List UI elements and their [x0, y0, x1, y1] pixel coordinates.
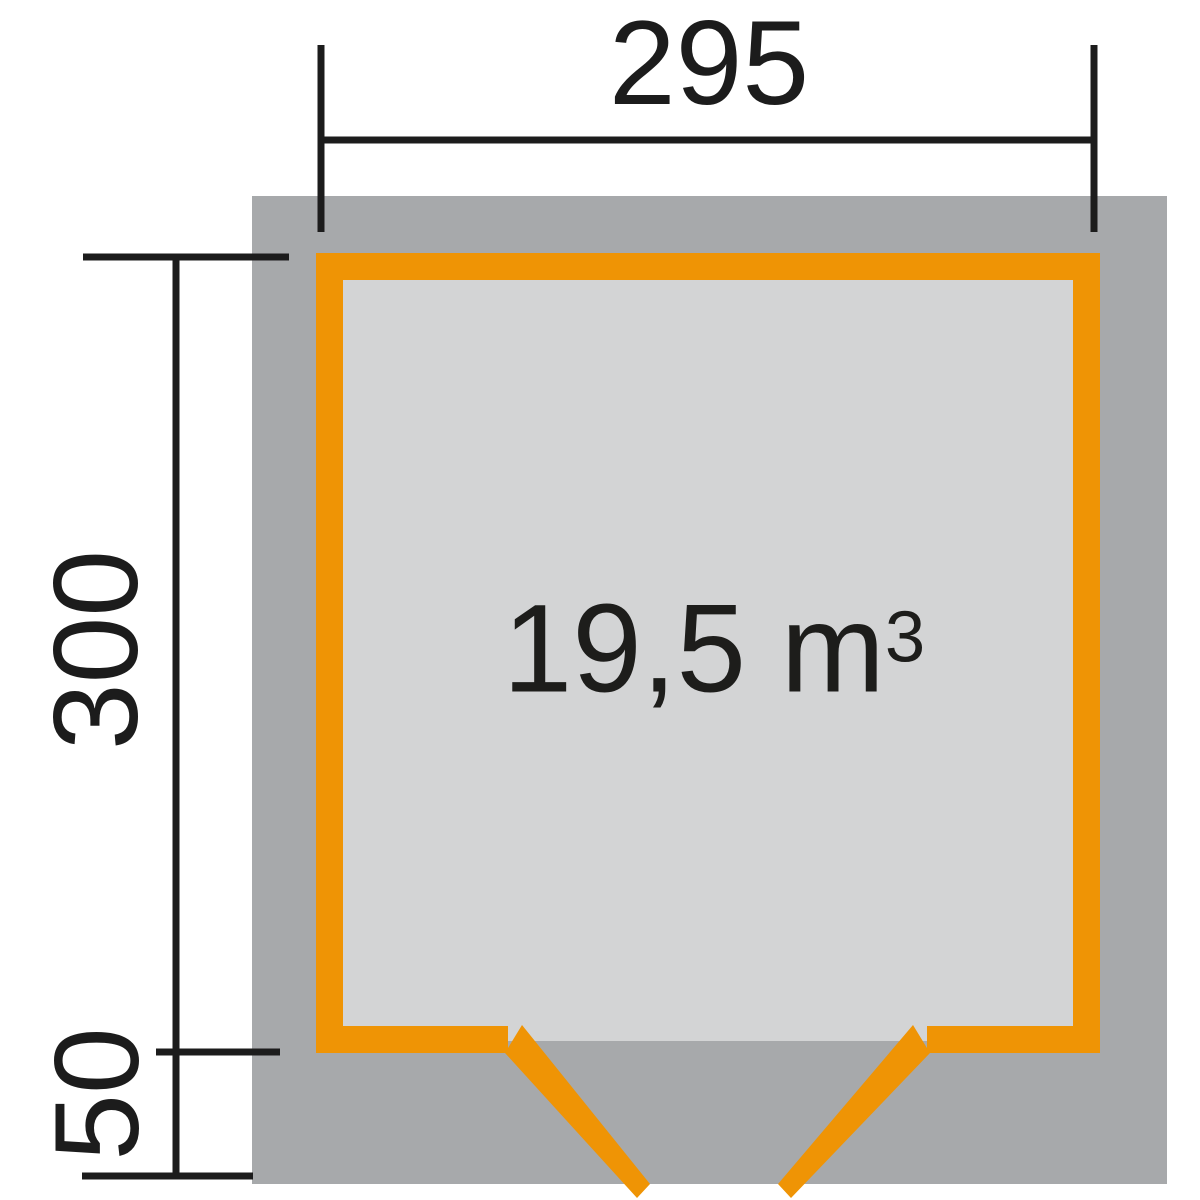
wall-bottom-right	[927, 1026, 1100, 1053]
dimension-height-label: 300	[36, 550, 156, 750]
volume-superscript: 3	[885, 596, 925, 677]
volume-value: 19,5 m	[503, 580, 885, 719]
volume-label: 19,5 m3	[503, 587, 925, 712]
wall-left	[316, 253, 343, 1053]
floor-plan-diagram: 295 300 50 19,5 m3	[0, 0, 1200, 1200]
dimension-overhang-label: 50	[37, 1027, 157, 1160]
wall-top	[316, 253, 1100, 280]
wall-bottom-left	[316, 1026, 508, 1053]
dimension-width-label: 295	[609, 3, 809, 123]
wall-right	[1073, 253, 1100, 1053]
